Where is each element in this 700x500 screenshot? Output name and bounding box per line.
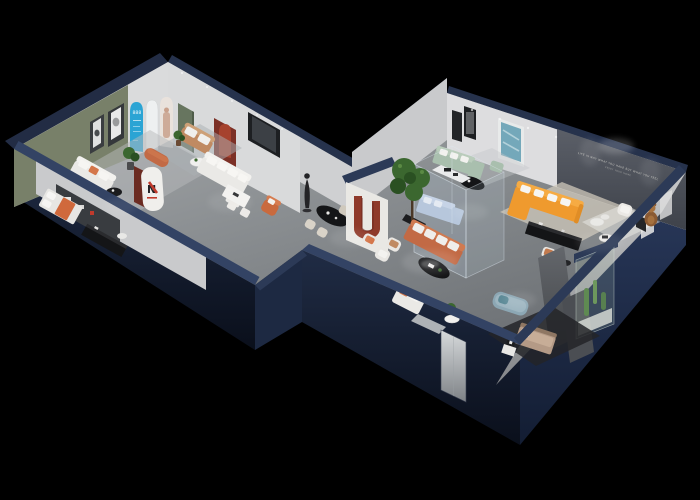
wall-art-plate: [113, 118, 120, 127]
wall-spot: [281, 128, 283, 130]
small-white-table: [117, 233, 127, 239]
tree-trunk: [411, 198, 414, 222]
wall-spot: [527, 127, 529, 129]
wall-art-circle: [94, 130, 99, 137]
wall-spot: [555, 136, 557, 138]
plant-pot: [176, 140, 181, 146]
spotlight-glow: [504, 292, 536, 308]
tree-foliage: [405, 183, 423, 201]
blue-arch-lines: [133, 131, 141, 132]
black-frame-art: [452, 110, 462, 142]
wall-spot: [499, 118, 501, 120]
feature-wall-glow: [598, 138, 634, 154]
tree-highlight: [420, 170, 424, 174]
feature-wall-glow: [580, 138, 600, 166]
wall-spot: [206, 86, 208, 88]
plant-foliage: [131, 153, 140, 162]
glass-right-face: [466, 172, 504, 278]
pillar-subtext: [147, 197, 157, 199]
statue-head: [304, 173, 310, 179]
table-decor: [326, 211, 329, 214]
blue-arch-lines: [133, 120, 141, 121]
counter-item: [453, 173, 458, 176]
plant-foliage: [179, 135, 185, 141]
spotlight-bright: [421, 260, 439, 268]
counter-item: [444, 168, 451, 172]
tree-foliage: [404, 172, 416, 184]
spotlight-glow: [104, 198, 136, 214]
table-decor: [468, 180, 471, 183]
frame-art-mat: [466, 112, 474, 134]
tree-foliage: [390, 178, 406, 194]
teddy-belly: [648, 216, 655, 225]
photo-figure-body: [163, 112, 170, 138]
tree-highlight: [398, 164, 402, 168]
feature-wall-glow: [640, 158, 660, 186]
table-plant-decor: [194, 158, 197, 161]
spotlight-glow: [208, 192, 252, 212]
spotlight-glow: [330, 229, 370, 247]
statue-base: [303, 209, 312, 213]
table-decor: [112, 189, 115, 192]
shelf-item-red: [90, 211, 94, 215]
spotlight-glow: [452, 204, 488, 220]
wall-spot: [181, 72, 183, 74]
spotlight-glow: [576, 232, 624, 252]
wall-spot: [256, 114, 258, 116]
showroom-floorplan-render: 888: [0, 0, 700, 500]
table-decor: [335, 217, 338, 220]
wall-spot: [471, 109, 473, 111]
photo-figure-head: [164, 108, 169, 113]
wall-spot: [231, 100, 233, 102]
floorplan-svg: 888: [0, 0, 700, 500]
blue-arch-lines: [133, 126, 140, 127]
plant-pot: [127, 162, 134, 170]
blue-arch-text: 888: [133, 110, 142, 116]
